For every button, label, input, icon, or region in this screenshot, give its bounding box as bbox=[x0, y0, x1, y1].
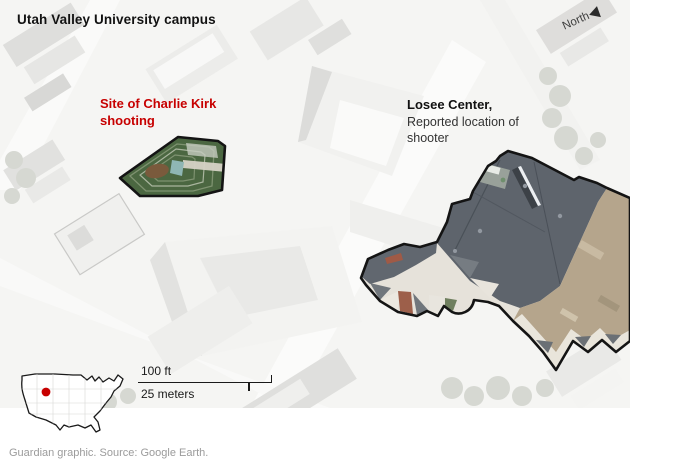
scale-meters-tick bbox=[248, 383, 250, 391]
losee-center-subtitle: Reported location of shooter bbox=[407, 114, 529, 147]
scale-feet-tick bbox=[271, 375, 273, 383]
scale-meters-label: 25 meters bbox=[141, 387, 194, 401]
source-caption: Guardian graphic. Source: Google Earth. bbox=[9, 447, 208, 459]
shooting-site-label: Site of Charlie Kirk shooting bbox=[100, 96, 232, 129]
guardian-map-graphic: Utah Valley University campus North Site… bbox=[0, 0, 695, 475]
losee-center-name: Losee Center, bbox=[407, 97, 529, 114]
north-arrow-icon bbox=[589, 5, 603, 17]
scale-bar-line bbox=[138, 382, 272, 383]
location-dot bbox=[42, 388, 51, 397]
losee-center-label: Losee Center, Reported location of shoot… bbox=[407, 97, 529, 146]
us-locator-map bbox=[15, 367, 127, 433]
scale-feet-label: 100 ft bbox=[141, 364, 171, 378]
aerial-photo-background bbox=[0, 0, 630, 408]
map-title: Utah Valley University campus bbox=[17, 12, 216, 27]
